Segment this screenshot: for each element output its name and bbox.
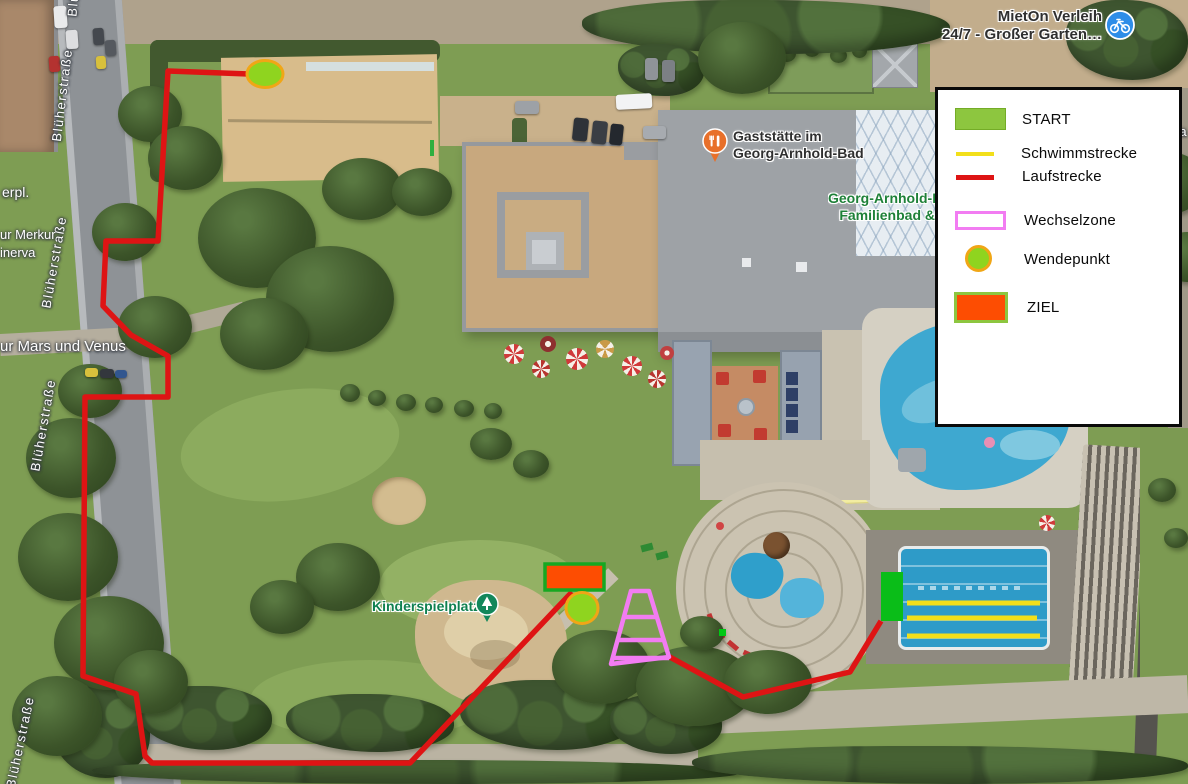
poi-bad-line1[interactable]: Georg-Arnhold-B xyxy=(828,190,935,207)
solar-panel xyxy=(786,372,798,385)
brown-dome xyxy=(763,532,790,559)
parasol xyxy=(660,346,674,360)
parasol xyxy=(566,348,588,370)
legend-box: START Schwimmstrecke Laufstrecke Wechsel… xyxy=(935,87,1182,427)
sand-pit xyxy=(372,477,426,525)
bush xyxy=(1164,528,1188,548)
legend-schwimmstrecke-label: Schwimmstrecke xyxy=(1021,145,1137,162)
poi-georg-arnhold-bad[interactable]: Georg-Arnhold-B Familienbad & xyxy=(828,190,935,224)
poi-mieton-line2[interactable]: 24/7 - Großer Garten… xyxy=(930,26,1102,44)
tree-row xyxy=(618,44,704,96)
lap-pool-dashes xyxy=(918,586,1022,590)
red-umbrella xyxy=(716,372,729,385)
parasol xyxy=(532,360,550,378)
car xyxy=(643,126,666,139)
bush xyxy=(484,403,502,419)
tree xyxy=(724,650,812,714)
pink-float xyxy=(984,437,995,448)
utility-vehicle xyxy=(85,368,98,377)
tree-row xyxy=(692,746,1188,784)
courtyard-structure-top xyxy=(532,240,556,264)
tree xyxy=(114,650,188,714)
car xyxy=(515,101,539,114)
car xyxy=(92,28,104,46)
car xyxy=(65,30,78,50)
tree xyxy=(92,203,158,261)
partial-label-minerva: inerva xyxy=(0,245,35,260)
legend-wendepunkt-swatch xyxy=(965,245,992,272)
bush xyxy=(340,384,360,402)
pool-swirl xyxy=(1000,430,1060,460)
bleacher-steps xyxy=(1069,444,1148,687)
label-mars-und-venus: ur Mars und Venus xyxy=(0,338,126,355)
red-umbrella xyxy=(753,370,766,383)
tree xyxy=(680,616,724,650)
legend-schwimmstrecke-swatch xyxy=(956,152,994,156)
legend-wendepunkt-label: Wendepunkt xyxy=(1024,251,1110,268)
playground-patch xyxy=(470,640,520,670)
parasol xyxy=(504,344,524,364)
car xyxy=(96,56,107,70)
bush xyxy=(425,397,443,413)
tree xyxy=(220,298,308,370)
splash-pool xyxy=(780,578,824,618)
bush xyxy=(454,400,474,417)
box-truck xyxy=(616,93,653,110)
solar-panel xyxy=(786,388,798,401)
bench-strip xyxy=(306,62,434,71)
tree xyxy=(513,450,549,478)
satellite-map-canvas[interactable]: Blüherstraße Blüherstraße Blüherstraße B… xyxy=(0,0,1188,784)
bush xyxy=(396,394,416,411)
playground-tree-pin-icon[interactable] xyxy=(475,592,499,624)
lap-pool xyxy=(898,546,1050,650)
legend-laufstrecke-swatch xyxy=(956,175,994,180)
poi-mieton-verleih[interactable]: MietOn Verleih 24/7 - Großer Garten… xyxy=(930,8,1102,44)
legend-ziel-swatch xyxy=(954,292,1008,323)
bush xyxy=(368,390,386,406)
green-bench xyxy=(655,551,668,561)
green-bench xyxy=(640,543,653,553)
car xyxy=(609,123,624,145)
car xyxy=(572,117,589,141)
legend-laufstrecke-label: Laufstrecke xyxy=(1022,168,1102,185)
solar-panel xyxy=(786,420,798,433)
partial-label-merkur: ur Merkur xyxy=(0,227,56,242)
tree xyxy=(698,22,786,94)
car xyxy=(645,58,658,80)
pool-platform xyxy=(898,448,926,472)
car xyxy=(104,40,116,57)
partial-label-erpl: erpl. xyxy=(2,184,29,200)
poi-kinderspielplatz-label[interactable]: Kinderspielplatz xyxy=(372,598,480,614)
tree xyxy=(392,168,452,216)
roof-vent xyxy=(742,258,751,267)
restaurant-pin-icon[interactable] xyxy=(702,128,728,164)
tree xyxy=(552,630,650,704)
tree xyxy=(470,428,512,460)
poi-mieton-line1[interactable]: MietOn Verleih xyxy=(930,8,1102,26)
solar-panel xyxy=(786,404,798,417)
tree xyxy=(118,296,192,358)
poi-gaststaette-label[interactable]: Gaststätte im Georg-Arnhold-Bad xyxy=(733,128,864,162)
tree xyxy=(322,158,402,220)
red-dot-object xyxy=(716,522,724,530)
utility-vehicle xyxy=(115,370,127,378)
legend-wechselzone-swatch xyxy=(955,211,1006,230)
car xyxy=(591,120,608,144)
poi-bad-line2[interactable]: Familienbad & xyxy=(828,207,935,224)
bush xyxy=(1148,478,1176,502)
tree-row xyxy=(92,760,740,784)
legend-wechselzone-label: Wechselzone xyxy=(1024,212,1116,229)
parasol xyxy=(622,356,642,376)
parasol xyxy=(540,336,556,352)
red-umbrella xyxy=(718,424,731,437)
court-post xyxy=(430,140,434,156)
bicycle-rental-icon[interactable] xyxy=(1105,10,1135,40)
spotted-ball xyxy=(1039,515,1055,531)
parasol xyxy=(648,370,666,388)
parasol xyxy=(596,340,614,358)
utility-vehicle xyxy=(100,369,114,378)
fountain xyxy=(737,398,755,416)
tree xyxy=(18,513,118,601)
legend-ziel-label: ZIEL xyxy=(1027,299,1059,316)
legend-start-swatch xyxy=(955,108,1006,130)
tree xyxy=(250,580,314,634)
glass-roof xyxy=(856,110,940,256)
car xyxy=(662,60,675,82)
volleyball-court-sand xyxy=(221,54,439,182)
tree xyxy=(148,126,222,190)
roof-vent xyxy=(796,262,807,272)
legend-start-label: START xyxy=(1022,111,1071,128)
